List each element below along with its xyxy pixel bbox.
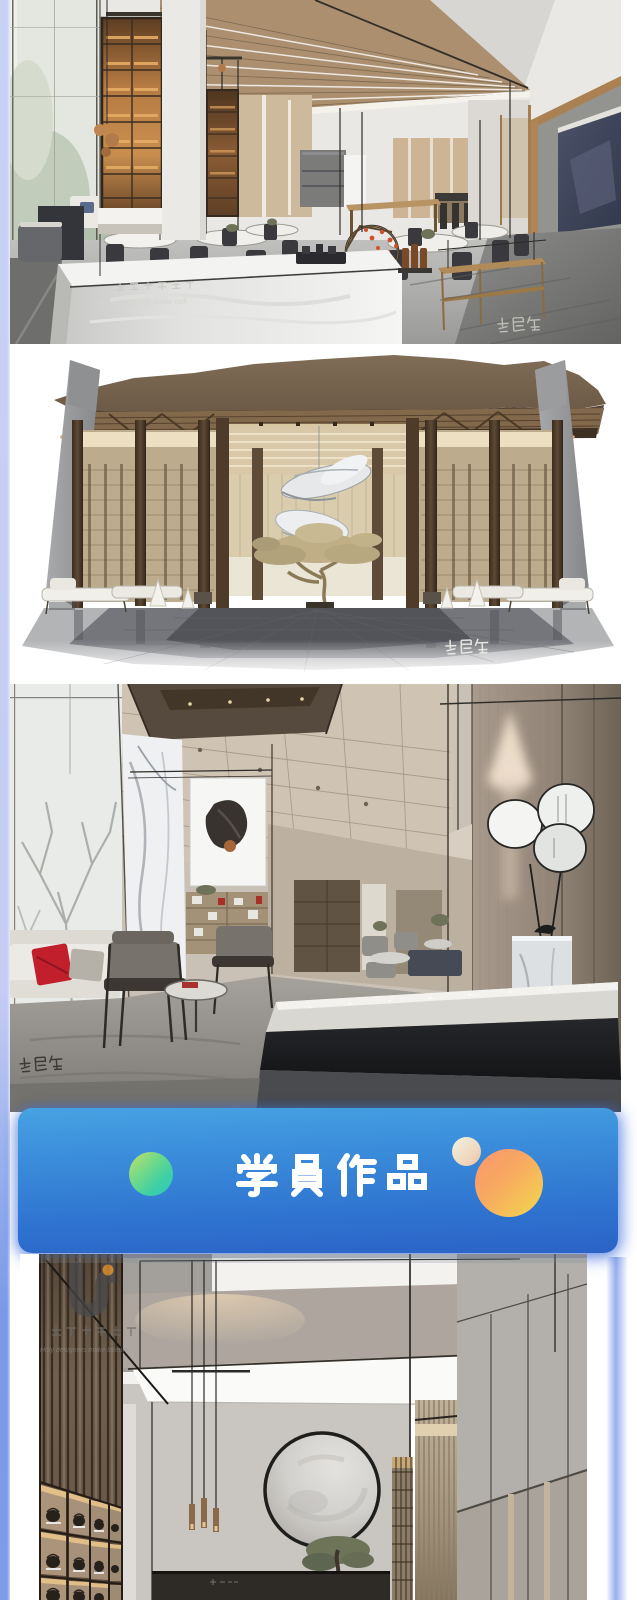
svg-text:Holy designers make talents: Holy designers make talents — [40, 1347, 128, 1354]
